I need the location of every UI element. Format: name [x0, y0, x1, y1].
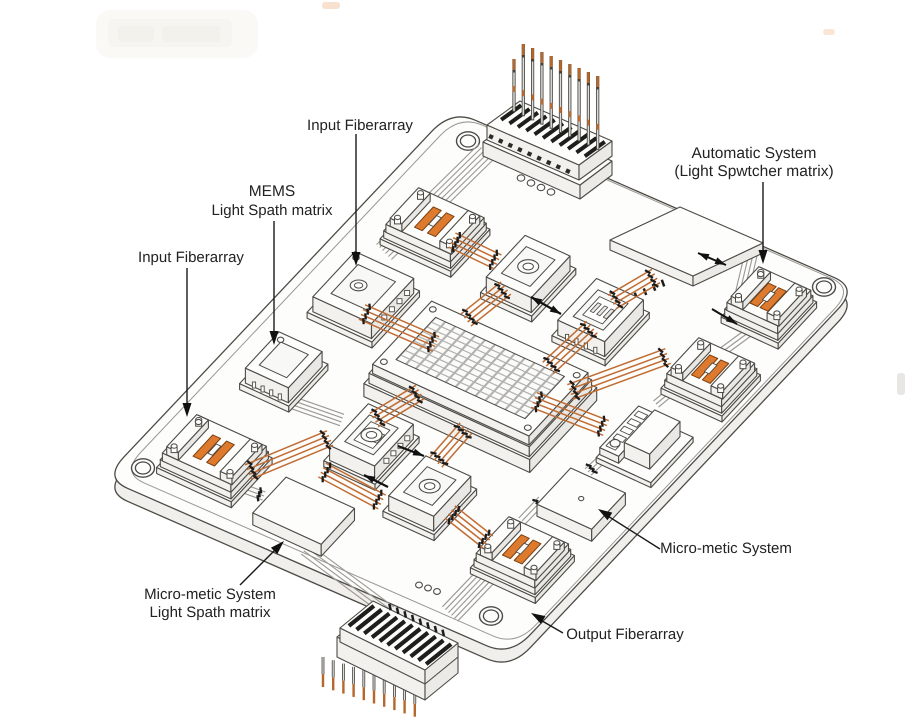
svg-text:Input Fiberarray: Input Fiberarray [307, 117, 413, 134]
svg-text:Input Fiberarray: Input Fiberarray [138, 249, 244, 266]
svg-text:Light Spath matrix: Light Spath matrix [212, 202, 333, 219]
svg-text:Light Spath matrix: Light Spath matrix [150, 604, 271, 621]
svg-text:Micro-metic System: Micro-metic System [144, 586, 276, 603]
svg-text:Automatic System: Automatic System [692, 145, 817, 162]
svg-text:Micro-metic System: Micro-metic System [660, 540, 792, 557]
svg-text:MEMS: MEMS [249, 183, 296, 200]
svg-text:(Light Spwtcher matrix): (Light Spwtcher matrix) [674, 163, 833, 180]
svg-text:Output Fiberarray: Output Fiberarray [566, 626, 684, 643]
